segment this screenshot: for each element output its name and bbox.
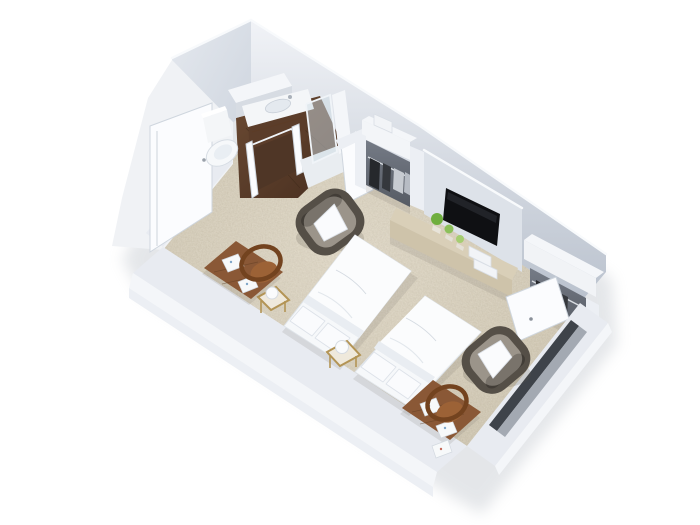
paper-print-color (440, 448, 442, 450)
hanging-clothes-dark (369, 158, 380, 190)
plant1-foliage (431, 213, 443, 225)
entry-door-knob (202, 158, 206, 162)
wardrobe2-door-handle (529, 317, 533, 321)
wardrobe1-right-pillar (410, 146, 424, 211)
paper-print (230, 261, 232, 263)
nightstand2-lamp (336, 341, 349, 354)
room-3d-render (0, 0, 700, 525)
paper-print (246, 283, 248, 285)
plant2-foliage (445, 225, 454, 234)
plant3-foliage (456, 235, 464, 243)
paper-print (444, 427, 446, 429)
floorplan-render-canvas (0, 0, 700, 525)
vanity-faucet (288, 95, 292, 99)
wardrobe1-left-pillar (355, 131, 366, 190)
hanging-clothes-dark2 (382, 163, 391, 192)
